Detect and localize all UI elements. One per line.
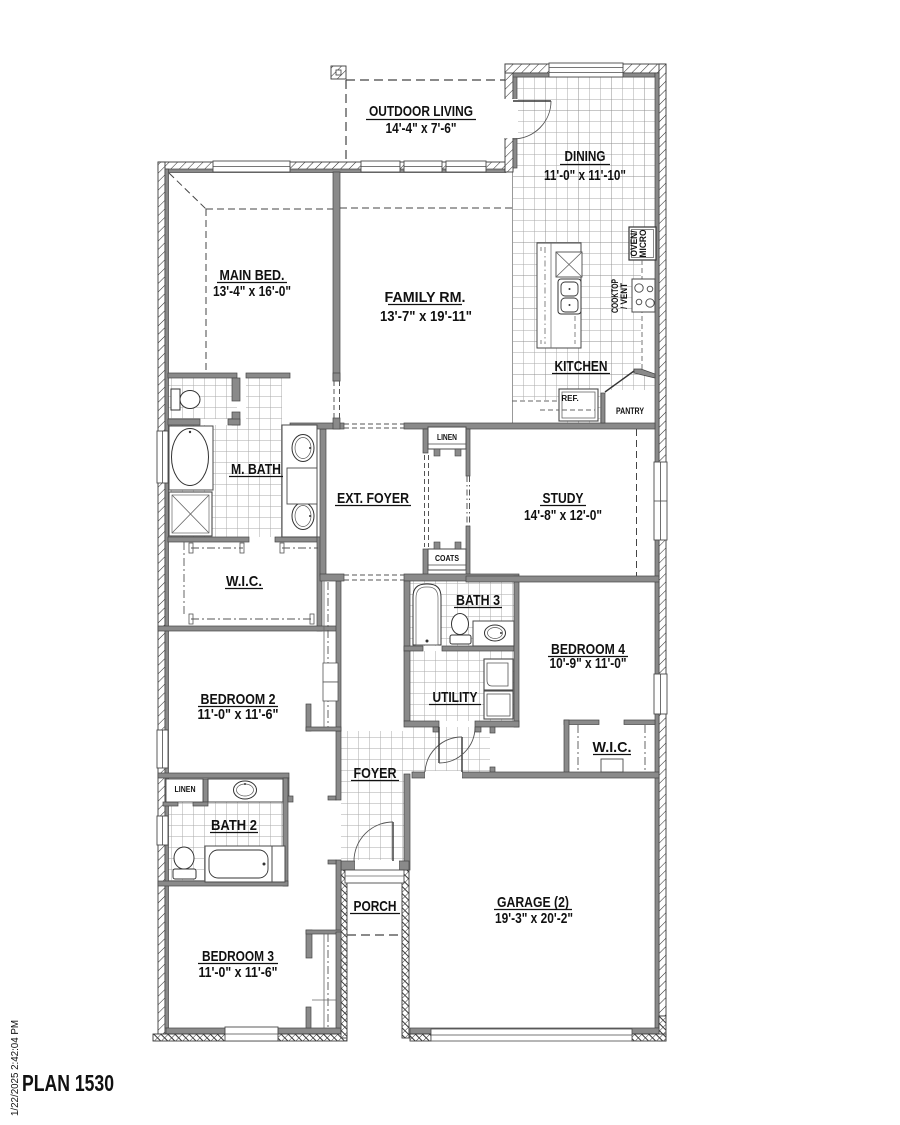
svg-text:GARAGE (2): GARAGE (2) bbox=[497, 894, 569, 911]
svg-text:FAMILY RM.: FAMILY RM. bbox=[385, 289, 466, 306]
svg-text:MICRO: MICRO bbox=[638, 230, 648, 258]
svg-text:11'-0" x 11'-10": 11'-0" x 11'-10" bbox=[544, 168, 626, 184]
svg-text:BATH 3: BATH 3 bbox=[456, 592, 500, 609]
svg-text:1/22/2025 2:42:04 PM: 1/22/2025 2:42:04 PM bbox=[10, 1020, 21, 1116]
svg-text:LINEN: LINEN bbox=[175, 785, 196, 794]
svg-text:REF.: REF. bbox=[561, 394, 578, 403]
svg-text:14'-8" x 12'-0": 14'-8" x 12'-0" bbox=[524, 508, 602, 524]
svg-text:11'-0" x 11'-6": 11'-0" x 11'-6" bbox=[198, 707, 279, 723]
svg-text:KITCHEN: KITCHEN bbox=[555, 358, 608, 375]
svg-text:BEDROOM 2: BEDROOM 2 bbox=[201, 691, 276, 708]
svg-text:UTILITY: UTILITY bbox=[433, 689, 478, 706]
svg-text:W.I.C.: W.I.C. bbox=[226, 573, 262, 590]
svg-text:BATH 2: BATH 2 bbox=[211, 817, 257, 834]
svg-text:13'-4" x 16'-0": 13'-4" x 16'-0" bbox=[213, 284, 291, 300]
svg-text:MAIN BED.: MAIN BED. bbox=[220, 267, 285, 284]
svg-text:PLAN 1530: PLAN 1530 bbox=[22, 1070, 114, 1096]
svg-text:10'-9" x 11'-0": 10'-9" x 11'-0" bbox=[550, 656, 627, 672]
svg-text:FOYER: FOYER bbox=[354, 765, 397, 782]
svg-text:19'-3" x 20'-2": 19'-3" x 20'-2" bbox=[495, 911, 573, 927]
svg-text:W.I.C.: W.I.C. bbox=[593, 739, 632, 756]
svg-text:EXT. FOYER: EXT. FOYER bbox=[337, 490, 409, 507]
svg-text:DINING: DINING bbox=[565, 148, 606, 165]
svg-text:13'-7" x 19'-11": 13'-7" x 19'-11" bbox=[380, 309, 472, 325]
svg-text:PORCH: PORCH bbox=[354, 898, 397, 915]
svg-text:M. BATH: M. BATH bbox=[231, 461, 281, 478]
svg-text:STUDY: STUDY bbox=[543, 490, 584, 507]
svg-text:/ VENT: / VENT bbox=[619, 283, 629, 309]
svg-text:COATS: COATS bbox=[435, 554, 460, 563]
svg-text:14'-4" x 7'-6": 14'-4" x 7'-6" bbox=[386, 121, 457, 137]
svg-text:BEDROOM 3: BEDROOM 3 bbox=[202, 948, 274, 965]
svg-text:LINEN: LINEN bbox=[437, 433, 457, 442]
svg-text:PANTRY: PANTRY bbox=[616, 406, 644, 416]
svg-text:OUTDOOR LIVING: OUTDOOR LIVING bbox=[369, 103, 473, 120]
svg-text:11'-0" x 11'-6": 11'-0" x 11'-6" bbox=[199, 965, 278, 981]
